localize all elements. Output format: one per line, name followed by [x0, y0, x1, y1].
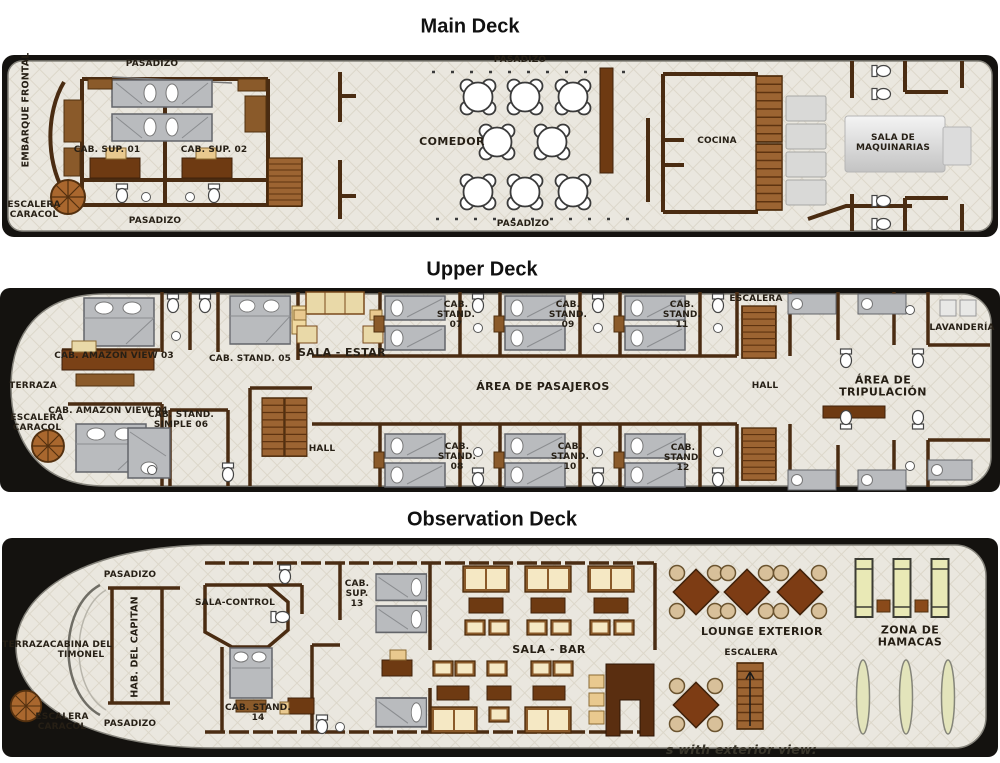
label-escalera-caracol: ESCALERA CARACOL [35, 712, 88, 732]
stairs-icon [742, 306, 776, 358]
label-cab-stand-09: CAB. STAND. 09 [549, 300, 587, 330]
escalera-stairs [737, 663, 763, 729]
label-area-de-pasajeros: ÁREA DE PASAJEROS [476, 381, 609, 393]
label-cab-stand-07: CAB. STAND. 07 [437, 300, 475, 330]
label-hall: HALL [752, 381, 779, 391]
toilet-icon [209, 184, 220, 203]
label-cab-sup-02: CAB. SUP. 02 [181, 145, 248, 155]
label-sala-bar: SALA - BAR [512, 644, 586, 656]
label-cab-sup-13: CAB. SUP. 13 [345, 579, 369, 609]
label-escalera-caracol: ESCALERA CARACOL [7, 200, 60, 220]
label-sala-de-maquinarias: SALA DE MAQUINARIAS [840, 133, 947, 153]
label-escalera: ESCALERA [724, 648, 777, 658]
buffet-counter [600, 68, 613, 173]
label-sala-estar: SALA - ESTAR [298, 347, 386, 359]
label-cab-stand-05: CAB. STAND. 05 [209, 354, 291, 364]
label-hall: HALL [309, 444, 336, 454]
stairs-icon [285, 398, 307, 456]
label-pasadizo: PASADIZO [497, 219, 549, 229]
label-pasadizo: PASADIZO [104, 719, 156, 729]
label-pasadizo: PASADIZO [104, 570, 156, 580]
label-cab-stand-12: CAB. STAND. 12 [664, 443, 702, 473]
label-cab-stand-11: CAB. STAND. 11 [663, 300, 701, 330]
label-area-de-tripulacion: ÁREA DE TRIPULACIÓN [825, 375, 942, 400]
label-pasadizo: PASADIZO [129, 216, 181, 226]
double-bed-icon [230, 296, 290, 344]
label-sala-control: SALA-CONTROL [195, 598, 275, 608]
label-lavanderia: LAVANDERÍA [929, 323, 994, 333]
stairs-icon [268, 158, 302, 206]
label-hab-del-capitan: HAB. DEL CAPITAN [131, 596, 142, 697]
watermark-text: s with exterior view: [666, 742, 817, 757]
label-terraza: TERRAZA [9, 381, 57, 391]
label-zona-de-hamacas: ZONA DE HAMACAS [865, 625, 955, 650]
sun-loungers [856, 559, 949, 617]
label-embarque-frontal: EMBARQUE FRONTAL [22, 53, 33, 168]
observation-deck-title: Observation Deck [407, 509, 577, 532]
sink-icon [186, 193, 195, 202]
sink-icon [142, 193, 151, 202]
label-escalera: ESCALERA [729, 294, 782, 304]
stairs-icon [742, 428, 776, 480]
crew-counter [823, 406, 885, 418]
label-cab-stand-08: CAB. STAND. 08 [438, 442, 476, 472]
deck-plan-page: Main Deck [0, 0, 1000, 763]
double-bed-icon [84, 298, 154, 346]
engine-machine-side [943, 127, 971, 165]
stairs-icon [756, 144, 782, 210]
main-deck-title: Main Deck [421, 16, 520, 39]
label-cab-stand-14: CAB. STAND. 14 [225, 703, 291, 723]
label-cocina: COCINA [697, 136, 737, 146]
label-pasadizo: PASADIZO [126, 59, 178, 69]
stairs-icon [756, 76, 782, 142]
label-lounge-exterior: LOUNGE EXTERIOR [701, 626, 823, 638]
label-cab-stand-simple-06: CAB. STAND. SIMPLE 06 [148, 410, 214, 430]
toilet-icon [117, 184, 128, 203]
spiral-staircase-icon [32, 430, 64, 462]
label-cab-amazon-view-03: CAB. AMAZON VIEW 03 [54, 351, 174, 361]
upper-deck-title: Upper Deck [426, 259, 537, 282]
label-cabina-del-timonel: CABINA DEL TIMONEL [50, 640, 112, 660]
label-cab-sup-01: CAB. SUP. 01 [74, 145, 141, 155]
label-comedor: COMEDOR [419, 136, 485, 148]
label-pasadizo: PASADIZO [494, 55, 546, 65]
label-terraza: TERRAZA [2, 640, 50, 650]
label-cab-stand-10: CAB. STAND. 10 [551, 442, 589, 472]
stairs-icon [262, 398, 284, 456]
label-escalera-caracol: ESCALERA CARACOL [10, 413, 63, 433]
